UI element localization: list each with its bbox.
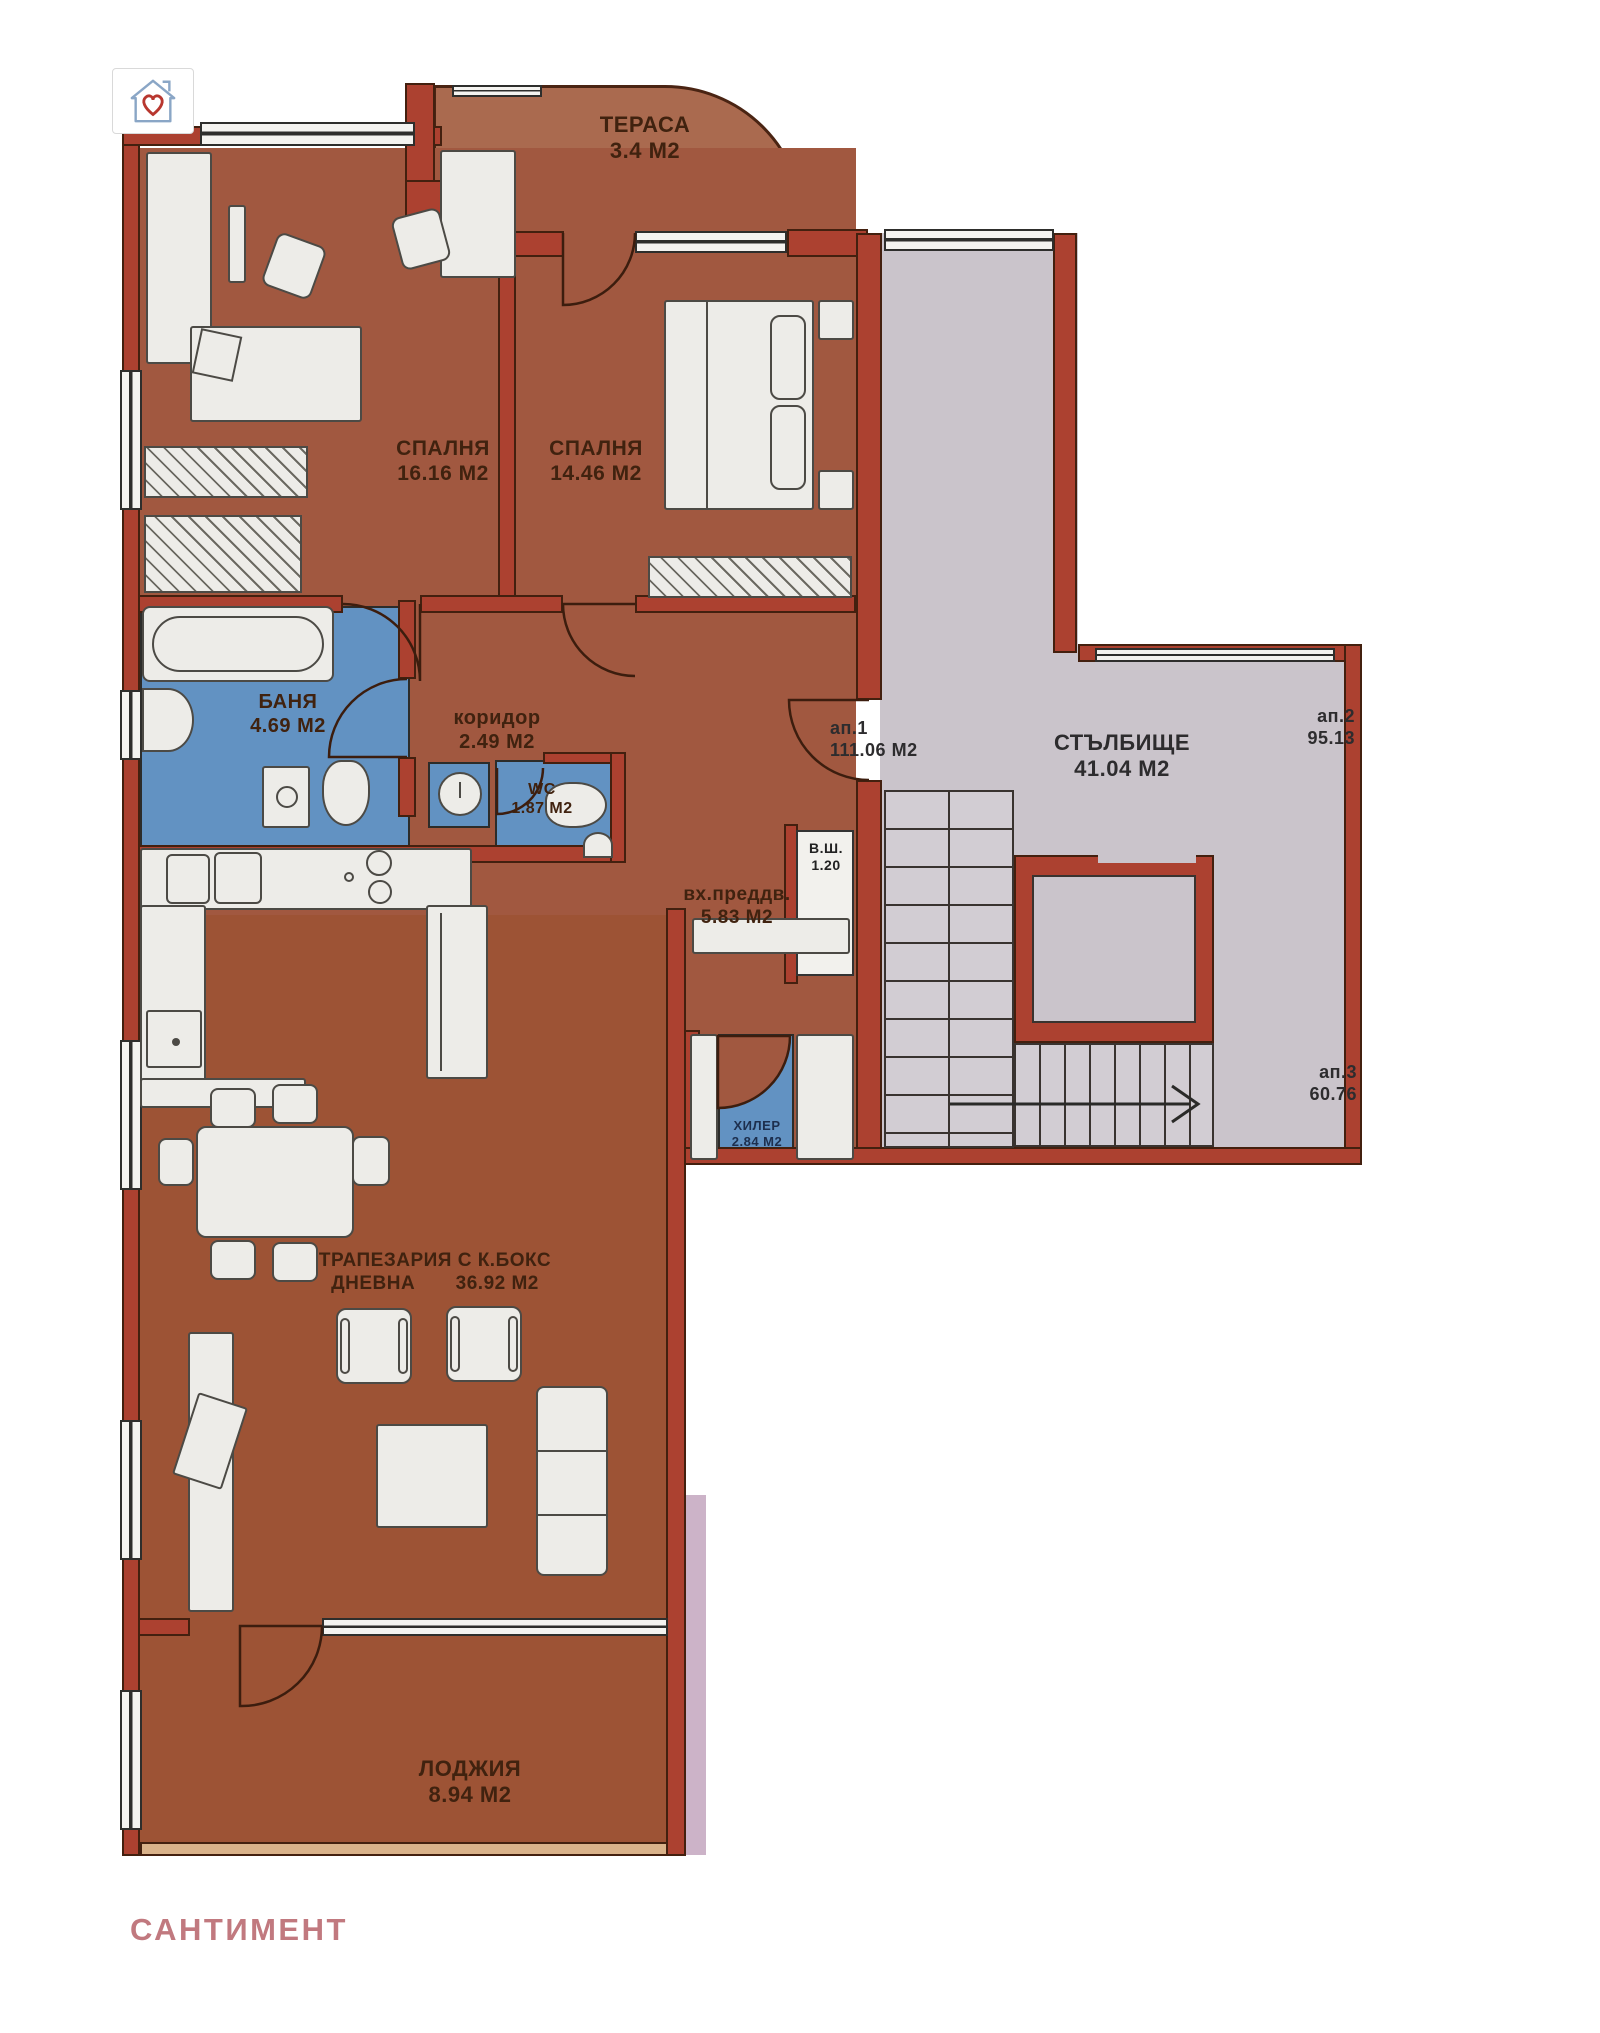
adjacent-building-sliver [686, 1495, 706, 1855]
stove-knob [344, 872, 354, 882]
label-vent-shaft: В.Ш. 1.20 [809, 840, 843, 874]
bedroom2-name: СПАЛНЯ [549, 437, 643, 460]
terrace-name: ТЕРАСА [600, 112, 690, 137]
window-bedroom1-left [120, 370, 142, 510]
armrest [508, 1316, 518, 1372]
wardrobe [648, 556, 852, 598]
closet [796, 1034, 854, 1160]
bed-single [190, 326, 362, 422]
wall-bath-right-a [398, 600, 416, 679]
armrest [450, 1316, 460, 1372]
loggia-area: 8.94 М2 [428, 1782, 511, 1807]
stove-burner [368, 880, 392, 904]
bathtub [142, 606, 334, 682]
nightstand [818, 470, 854, 510]
armchair [446, 1306, 522, 1382]
house-heart-icon [124, 75, 182, 127]
bed-linen-line [706, 302, 708, 508]
stairwell-name: СТЪЛБИЩЕ [1054, 730, 1190, 755]
pillow [770, 315, 806, 400]
wall-bedroom2-top-a [514, 231, 564, 257]
window-living-left [120, 1420, 142, 1560]
peninsula-line [440, 913, 442, 1071]
wall-corridor-right [1053, 233, 1077, 653]
bath-name: БАНЯ [259, 691, 318, 713]
entry-name: вх.преддв. [683, 884, 790, 905]
ap1-area: 111.06 М2 [830, 740, 918, 760]
heater-hand [459, 782, 461, 798]
label-apartment2: ап.2 95.13 [1307, 706, 1355, 749]
bedroom2-area: 14.46 М2 [550, 462, 642, 485]
wardrobe [144, 515, 302, 593]
shaft-area: 1.20 [811, 857, 840, 873]
bathtub-basin [152, 616, 324, 672]
room-label-living: ТРАПЕЗАРИЯ С К.БОКС ДНЕВНА 36.92 М2 [319, 1250, 551, 1296]
wall-bath-right-b [398, 757, 416, 817]
room-label-terrace: ТЕРАСА 3.4 М2 [600, 112, 690, 165]
pillow [192, 328, 243, 382]
kitchen-peninsula [426, 905, 488, 1079]
stairs-lower-flight [1014, 1043, 1214, 1147]
bedroom1-name: СПАЛНЯ [396, 437, 490, 460]
room-label-corridor: коридор 2.49 М2 [453, 706, 540, 754]
bath-area: 4.69 М2 [250, 715, 326, 737]
sofa-cushion-line [538, 1450, 606, 1452]
room-label-bedroom1: СПАЛНЯ 16.16 М2 [396, 436, 490, 486]
armchair [336, 1308, 412, 1384]
dining-chair [272, 1242, 318, 1282]
sofa [536, 1386, 608, 1576]
living-area: 36.92 М2 [456, 1273, 539, 1294]
stairs-center-divider [948, 792, 950, 1146]
corridor-name: коридор [453, 707, 540, 729]
wc-name: WC [528, 781, 556, 798]
entry-area: 5.83 М2 [701, 907, 773, 928]
loggia-sill [140, 1842, 680, 1856]
pillow [770, 405, 806, 490]
living-name-line1: ТРАПЕЗАРИЯ С К.БОКС [319, 1250, 551, 1271]
fridge [146, 1010, 202, 1068]
label-apartment1: ап.1 111.06 М2 [830, 718, 918, 761]
loggia-floor [138, 1636, 684, 1856]
wall-living-right [666, 908, 686, 1856]
armrest [398, 1318, 408, 1374]
window-bedroom1-top [200, 122, 415, 146]
elevator-shaft-inner [1032, 875, 1196, 1023]
water-heater [438, 772, 482, 816]
window-kitchen-left [120, 1040, 142, 1190]
storage-name: ХИЛЕР [734, 1118, 781, 1133]
floor-plan-page: { "brand": { "text": "САНТИМЕНТ", "color… [0, 0, 1600, 2033]
sink [142, 688, 194, 752]
ap3-area: 60.76 [1309, 1084, 1357, 1104]
label-apartment3: ап.3 60.76 [1309, 1062, 1357, 1105]
sink [583, 832, 613, 858]
armrest [340, 1318, 350, 1374]
corridor-area: 2.49 М2 [459, 731, 535, 753]
room-label-stairwell: СТЪЛБИЩЕ 41.04 М2 [1054, 730, 1190, 783]
dining-chair [272, 1084, 318, 1124]
shelf-board [228, 205, 246, 283]
window-corridor-top [884, 229, 1054, 251]
living-name-line2: ДНЕВНА [331, 1273, 415, 1294]
fridge-dot [172, 1038, 180, 1046]
wc-area: 1.87 М2 [511, 800, 572, 817]
dining-chair [158, 1138, 194, 1186]
wall-bedrooms-bottom-b [420, 595, 563, 613]
washer-door [276, 786, 298, 808]
window-loggia-left [120, 1690, 142, 1830]
ap2-name: ап.2 [1317, 706, 1355, 726]
room-label-loggia: ЛОДЖИЯ 8.94 М2 [419, 1756, 521, 1809]
wall-stairwell-bottom [684, 1147, 1362, 1165]
room-label-storage: ХИЛЕР 2.84 М2 [732, 1118, 782, 1149]
storage-area: 2.84 М2 [732, 1134, 782, 1149]
window-terrace-top [452, 85, 542, 97]
dining-chair [352, 1136, 390, 1186]
window-stairwell-top [1095, 648, 1335, 662]
room-label-entry: вх.преддв. 5.83 М2 [683, 884, 790, 930]
window-loggia-separator [322, 1618, 668, 1636]
ap2-area: 95.13 [1307, 728, 1355, 748]
stairwell-area: 41.04 М2 [1074, 756, 1170, 781]
washing-machine [262, 766, 310, 828]
room-label-wc: WC 1.87 М2 [511, 780, 572, 818]
shaft-name: В.Ш. [809, 840, 843, 856]
dining-chair [210, 1088, 256, 1128]
brand-name: САНТИМЕНТ [130, 1912, 348, 1948]
ap1-name: ап.1 [830, 718, 868, 738]
loggia-name: ЛОДЖИЯ [419, 1756, 521, 1781]
favorite-button[interactable] [112, 68, 194, 134]
toilet [322, 760, 370, 826]
wall-loggia-left-pier [138, 1618, 190, 1636]
dining-table [196, 1126, 354, 1238]
coffee-table [376, 1424, 488, 1528]
wardrobe [144, 446, 308, 498]
wall-stair-separation-a [856, 233, 882, 700]
stairs-upper-flight [884, 790, 1014, 1148]
window-bedroom2-top [635, 231, 787, 253]
terrace-area: 3.4 М2 [610, 138, 680, 163]
desk [440, 150, 516, 278]
window-bath-left [120, 690, 142, 760]
kitchen-sink [214, 852, 262, 904]
room-label-bedroom2: СПАЛНЯ 14.46 М2 [549, 436, 643, 486]
nightstand [818, 300, 854, 340]
dining-chair [210, 1240, 256, 1280]
closet [690, 1034, 718, 1160]
ap3-name: ап.3 [1319, 1062, 1357, 1082]
stove-burner [366, 850, 392, 876]
room-label-bath: БАНЯ 4.69 М2 [250, 690, 326, 738]
wall-stair-separation-b [856, 780, 882, 1165]
elevator-shaft-opening [1098, 851, 1196, 863]
bedroom1-area: 16.16 М2 [397, 462, 489, 485]
kitchen-sink [166, 854, 210, 904]
sofa-cushion-line [538, 1514, 606, 1516]
